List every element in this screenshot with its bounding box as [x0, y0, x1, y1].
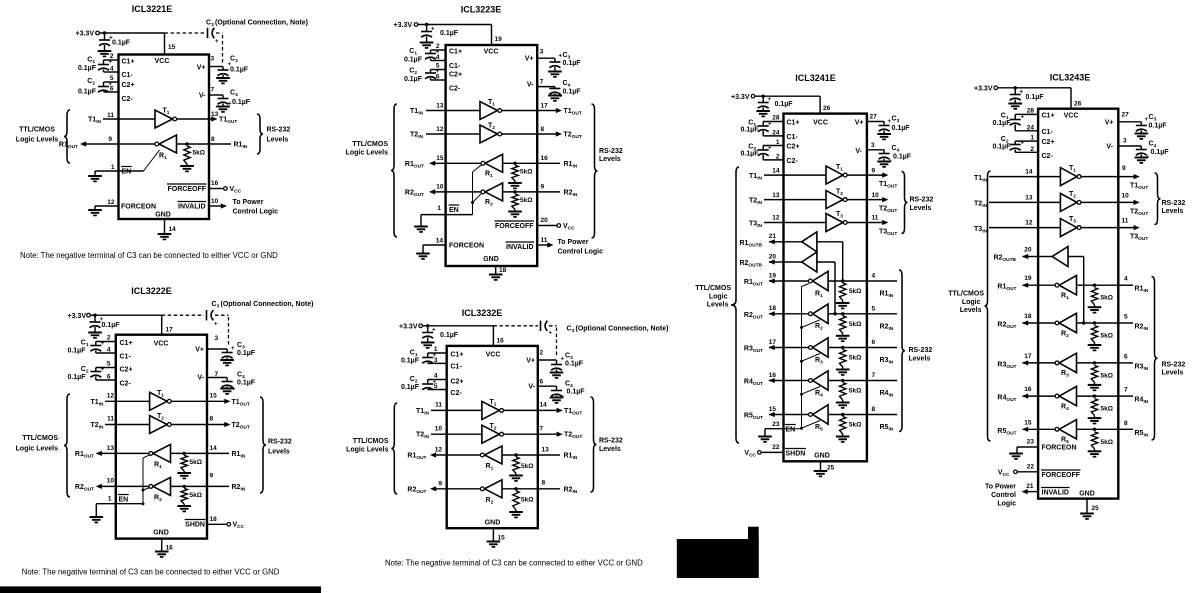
svg-text:25: 25 — [827, 465, 835, 472]
svg-text:C2+: C2+ — [1042, 139, 1055, 146]
svg-text:24: 24 — [772, 129, 780, 136]
svg-text:23: 23 — [1027, 439, 1035, 446]
svg-text:5kΩ: 5kΩ — [520, 197, 532, 204]
svg-text:FORCEON: FORCEON — [121, 204, 156, 211]
svg-text:C2+: C2+ — [787, 144, 800, 151]
svg-text:SHDN: SHDN — [786, 451, 806, 458]
svg-text:C1+: C1+ — [122, 59, 135, 66]
svg-text:0.1µF: 0.1µF — [563, 89, 582, 96]
svg-text:0.1µF: 0.1µF — [230, 67, 249, 74]
svg-text:5kΩ: 5kΩ — [1101, 439, 1113, 446]
svg-text:Note: The negative terminal of: Note: The negative terminal of C3 can be… — [385, 559, 643, 568]
svg-text:11: 11 — [872, 215, 879, 222]
svg-text:8: 8 — [1124, 420, 1128, 427]
svg-text:Levels: Levels — [599, 446, 621, 453]
svg-text:+: + — [214, 322, 218, 328]
svg-text:VCC: VCC — [484, 49, 499, 56]
svg-text:VCC: VCC — [1064, 113, 1079, 120]
svg-text:23: 23 — [772, 421, 780, 428]
svg-text:C2-: C2- — [449, 86, 461, 93]
svg-text:Logic Levels: Logic Levels — [346, 150, 389, 157]
svg-text:1: 1 — [437, 205, 441, 212]
svg-text:TTL/CMOS: TTL/CMOS — [948, 291, 984, 298]
svg-text:0.1µF: 0.1µF — [775, 101, 794, 108]
svg-text:+3.3V: +3.3V — [399, 324, 418, 331]
svg-text:RS-232: RS-232 — [909, 347, 933, 354]
svg-text:C1-: C1- — [122, 72, 134, 79]
svg-text:5: 5 — [434, 383, 438, 390]
svg-text:Levels: Levels — [268, 449, 290, 456]
svg-text:2: 2 — [776, 154, 780, 161]
svg-text:2: 2 — [436, 43, 440, 50]
svg-text:5: 5 — [1124, 314, 1128, 321]
svg-text:V+: V+ — [855, 120, 864, 127]
svg-text:EN: EN — [449, 207, 459, 214]
svg-text:+: + — [231, 346, 235, 352]
svg-text:7: 7 — [540, 426, 544, 433]
svg-text:10: 10 — [435, 426, 443, 433]
svg-text:5kΩ: 5kΩ — [521, 463, 533, 470]
svg-text:4: 4 — [436, 54, 440, 61]
svg-text:+: + — [768, 122, 772, 128]
svg-text:VCC: VCC — [813, 120, 828, 127]
svg-text:SHDN: SHDN — [185, 522, 205, 529]
svg-text:5kΩ: 5kΩ — [190, 492, 202, 499]
svg-text:7: 7 — [211, 87, 215, 94]
svg-text:V-: V- — [527, 82, 534, 89]
svg-text:+: + — [1020, 90, 1024, 96]
svg-text:INVALID: INVALID — [1042, 490, 1069, 497]
svg-text:12: 12 — [435, 447, 443, 454]
svg-text:ICL3243E: ICL3243E — [1050, 73, 1091, 83]
svg-text:FORCEON: FORCEON — [449, 243, 484, 250]
svg-text:+3.3V: +3.3V — [974, 86, 993, 93]
svg-text:RS-232: RS-232 — [1162, 200, 1186, 207]
svg-text:10: 10 — [211, 198, 219, 205]
svg-text:8: 8 — [541, 126, 545, 133]
svg-text:20: 20 — [541, 217, 549, 224]
svg-text:12: 12 — [772, 215, 780, 222]
svg-text:0.1µF: 0.1µF — [440, 30, 459, 37]
svg-text:14: 14 — [1025, 169, 1033, 176]
svg-text:6: 6 — [110, 86, 114, 93]
svg-text:VCC: VCC — [154, 341, 169, 348]
svg-text:0.1µF: 0.1µF — [404, 57, 423, 64]
svg-text:+: + — [768, 97, 772, 103]
svg-text:0.1µF: 0.1µF — [892, 125, 911, 132]
svg-text:C2+: C2+ — [451, 379, 464, 386]
svg-text:0.1µF: 0.1µF — [567, 389, 586, 396]
svg-text:0.1µF: 0.1µF — [1151, 149, 1170, 156]
svg-text:TTL/CMOS: TTL/CMOS — [19, 127, 55, 134]
svg-text:TTL/CMOS: TTL/CMOS — [352, 141, 388, 148]
svg-text:Logic Levels: Logic Levels — [16, 446, 59, 453]
svg-text:7: 7 — [215, 371, 219, 378]
svg-text:5kΩ: 5kΩ — [849, 355, 861, 362]
svg-text:5kΩ: 5kΩ — [521, 497, 533, 504]
svg-text:5kΩ: 5kΩ — [1101, 406, 1113, 413]
svg-text:C2-: C2- — [120, 381, 132, 388]
svg-text:25: 25 — [1092, 505, 1100, 512]
svg-text:9: 9 — [1122, 165, 1126, 172]
svg-text:10: 10 — [436, 184, 444, 191]
svg-text:15: 15 — [168, 44, 176, 51]
svg-text:RS-232: RS-232 — [1162, 362, 1186, 369]
svg-text:28: 28 — [772, 115, 780, 122]
svg-text:22: 22 — [1027, 464, 1035, 471]
svg-text:18: 18 — [769, 305, 777, 312]
svg-text:0.1µF: 0.1µF — [740, 127, 759, 134]
svg-text:7: 7 — [540, 79, 544, 86]
svg-text:0.1µF: 0.1µF — [992, 120, 1011, 127]
svg-text:6: 6 — [872, 339, 876, 346]
svg-text:0.1µF: 0.1µF — [78, 65, 97, 72]
svg-text:11: 11 — [1122, 218, 1129, 225]
svg-text:INVALID: INVALID — [506, 244, 533, 251]
svg-text:ICL3221E: ICL3221E — [132, 4, 173, 14]
svg-text:0.1µF: 0.1µF — [232, 99, 251, 106]
svg-text:5kΩ: 5kΩ — [1101, 333, 1113, 340]
svg-text:21: 21 — [769, 233, 777, 240]
svg-text:1: 1 — [108, 496, 112, 503]
svg-text:9: 9 — [438, 481, 442, 488]
svg-text:15: 15 — [436, 155, 444, 162]
svg-text:9: 9 — [872, 167, 876, 174]
svg-text:16: 16 — [497, 338, 505, 345]
svg-text:RS-232: RS-232 — [599, 148, 623, 155]
svg-text:C1-: C1- — [1042, 129, 1054, 136]
svg-text:0.1µF: 0.1µF — [78, 89, 97, 96]
svg-text:V-: V- — [528, 384, 535, 391]
svg-text:RS-232: RS-232 — [268, 439, 292, 446]
svg-text:11: 11 — [107, 416, 114, 423]
svg-text:18: 18 — [499, 267, 507, 274]
svg-text:Logic: Logic — [962, 299, 981, 306]
svg-text:+3.3V: +3.3V — [76, 31, 95, 38]
svg-text:V-: V- — [855, 148, 862, 155]
svg-text:4: 4 — [107, 347, 111, 354]
svg-text:1: 1 — [1030, 135, 1034, 142]
svg-text:0.1µF: 0.1µF — [740, 151, 759, 158]
svg-text:17: 17 — [166, 327, 174, 334]
svg-text:RS-232: RS-232 — [910, 197, 934, 204]
svg-text:Note: The negative terminal of: Note: The negative terminal of C3 can be… — [20, 251, 278, 260]
svg-text:FORCEON: FORCEON — [1042, 445, 1077, 452]
svg-text:20: 20 — [769, 253, 777, 260]
svg-text:V+: V+ — [525, 56, 534, 63]
svg-text:17: 17 — [541, 103, 549, 110]
svg-text:+3.3V: +3.3V — [394, 22, 413, 29]
svg-text:TTL/CMOS: TTL/CMOS — [22, 435, 58, 442]
svg-text:+: + — [431, 27, 435, 33]
svg-text:V-: V- — [197, 375, 204, 382]
svg-text:To Power: To Power — [985, 484, 1016, 491]
svg-text:To Power: To Power — [233, 199, 264, 206]
svg-text:V+: V+ — [526, 358, 535, 365]
svg-text:16: 16 — [541, 155, 549, 162]
svg-text:Logic Levels: Logic Levels — [16, 137, 59, 144]
svg-text:C2+: C2+ — [120, 367, 133, 374]
svg-text:5: 5 — [436, 63, 440, 70]
svg-text:V+: V+ — [1105, 120, 1114, 127]
svg-text:1: 1 — [434, 346, 438, 353]
svg-text:11: 11 — [107, 112, 114, 119]
svg-text:0.1µF: 0.1µF — [112, 40, 131, 47]
svg-text:15: 15 — [769, 406, 777, 413]
svg-text:6: 6 — [436, 74, 440, 81]
svg-text:20: 20 — [1024, 247, 1032, 254]
svg-text:ICL3223E: ICL3223E — [461, 5, 502, 15]
svg-text:14: 14 — [436, 238, 444, 245]
svg-text:V-: V- — [1106, 144, 1113, 151]
svg-text:+: + — [1021, 115, 1025, 121]
svg-text:8: 8 — [211, 136, 215, 143]
svg-text:FORCEOFF: FORCEOFF — [168, 186, 207, 193]
svg-text:6: 6 — [1124, 353, 1128, 360]
svg-text:+: + — [432, 328, 436, 334]
svg-text:C2+: C2+ — [122, 82, 135, 89]
svg-text:8: 8 — [872, 406, 876, 413]
svg-text:V+: V+ — [197, 65, 206, 72]
svg-text:5kΩ: 5kΩ — [193, 150, 205, 157]
svg-text:16: 16 — [211, 180, 219, 187]
svg-text:0.1µF: 0.1µF — [1026, 94, 1045, 101]
svg-text:C1+: C1+ — [787, 120, 800, 127]
svg-text:8: 8 — [542, 480, 546, 487]
svg-text:3: 3 — [871, 142, 875, 149]
svg-text:13: 13 — [542, 447, 550, 454]
svg-text:15: 15 — [498, 535, 506, 542]
svg-text:0.1µF: 0.1µF — [992, 143, 1011, 150]
svg-text:C1+: C1+ — [1042, 112, 1055, 119]
svg-text:Logic: Logic — [997, 501, 1016, 508]
svg-text:10: 10 — [107, 478, 115, 485]
svg-text:+3.3V: +3.3V — [731, 94, 750, 101]
svg-text:EN: EN — [119, 497, 129, 504]
svg-text:INVALID: INVALID — [178, 204, 205, 211]
svg-text:5: 5 — [872, 305, 876, 312]
svg-text:0.1µF: 0.1µF — [401, 358, 420, 365]
svg-text:3: 3 — [1123, 138, 1127, 145]
svg-text:Control: Control — [991, 492, 1016, 499]
svg-text:26: 26 — [1074, 101, 1082, 108]
svg-text:24: 24 — [1027, 124, 1035, 131]
svg-text:15: 15 — [1024, 419, 1032, 426]
svg-text:8: 8 — [210, 416, 214, 423]
svg-text:13: 13 — [772, 192, 780, 199]
svg-text:4: 4 — [872, 273, 876, 280]
svg-text:16: 16 — [769, 372, 777, 379]
svg-text:0.1µF: 0.1µF — [237, 380, 256, 387]
svg-text:4: 4 — [1124, 276, 1128, 283]
svg-text:2: 2 — [110, 53, 114, 60]
svg-text:27: 27 — [870, 114, 878, 121]
svg-text:3: 3 — [540, 49, 544, 56]
svg-text:4: 4 — [434, 373, 438, 380]
svg-text:0.1µF: 0.1µF — [893, 154, 912, 161]
svg-text:13: 13 — [436, 103, 444, 110]
svg-text:FORCEOFF: FORCEOFF — [1042, 472, 1081, 479]
svg-text:10: 10 — [1122, 192, 1130, 199]
svg-text:19: 19 — [495, 36, 503, 43]
svg-text:FORCEOFF: FORCEOFF — [495, 223, 534, 230]
svg-text:(Optional Connection, Note): (Optional Connection, Note) — [215, 20, 308, 27]
svg-text:9: 9 — [210, 473, 214, 480]
svg-text:3: 3 — [215, 335, 219, 342]
svg-text:C1-: C1- — [787, 134, 799, 141]
svg-text:11: 11 — [435, 402, 442, 409]
svg-text:C1+: C1+ — [451, 352, 464, 359]
svg-text:EN: EN — [122, 169, 132, 176]
svg-text:7: 7 — [872, 372, 876, 379]
svg-text:5: 5 — [110, 75, 114, 82]
svg-text:4: 4 — [110, 66, 114, 73]
svg-text:14: 14 — [772, 167, 780, 174]
svg-text:(Optional Connection, Note): (Optional Connection, Note) — [576, 326, 669, 333]
svg-text:Logic Levels: Logic Levels — [346, 447, 389, 454]
svg-text:C2-: C2- — [451, 390, 463, 397]
svg-text:1: 1 — [111, 164, 115, 171]
svg-text:16: 16 — [166, 545, 174, 552]
svg-text:Logic: Logic — [709, 294, 728, 301]
svg-text:Note: The negative terminal of: Note: The negative terminal of C3 can be… — [22, 568, 280, 577]
svg-text:C2+: C2+ — [449, 71, 462, 78]
svg-text:C2-: C2- — [787, 158, 799, 165]
svg-text:5kΩ: 5kΩ — [1101, 372, 1113, 379]
svg-text:+: + — [561, 357, 565, 363]
svg-text:18: 18 — [1024, 313, 1032, 320]
svg-text:+: + — [768, 146, 772, 152]
svg-text:7: 7 — [1124, 387, 1128, 394]
svg-text:22: 22 — [772, 444, 780, 451]
svg-text:13: 13 — [107, 445, 115, 452]
svg-text:2: 2 — [1030, 146, 1034, 153]
svg-text:Levels: Levels — [960, 307, 982, 314]
svg-text:+: + — [1021, 141, 1025, 147]
svg-text:EN: EN — [786, 427, 796, 434]
svg-text:18: 18 — [210, 516, 218, 523]
svg-text:19: 19 — [1024, 275, 1032, 282]
svg-text:0.1µF: 0.1µF — [401, 384, 420, 391]
svg-text:Control Logic: Control Logic — [233, 209, 279, 216]
svg-text:0.1µF: 0.1µF — [67, 348, 86, 355]
svg-text:C1-: C1- — [120, 354, 132, 361]
svg-text:GND: GND — [155, 212, 171, 219]
svg-text:14: 14 — [169, 226, 177, 233]
svg-text:11: 11 — [541, 237, 548, 244]
svg-text:RS-232: RS-232 — [267, 127, 291, 134]
svg-text:5kΩ: 5kΩ — [849, 288, 861, 295]
svg-text:C1-: C1- — [449, 63, 461, 70]
svg-text:VCC: VCC — [155, 58, 170, 65]
svg-text:5kΩ: 5kΩ — [1101, 295, 1113, 302]
svg-text:To Power: To Power — [558, 239, 589, 246]
svg-text:5: 5 — [107, 361, 111, 368]
svg-text:0.1µF: 0.1µF — [1149, 123, 1168, 130]
svg-text:C1+: C1+ — [120, 340, 133, 347]
svg-text:3: 3 — [434, 357, 438, 364]
svg-text:ICL3232E: ICL3232E — [462, 308, 503, 318]
svg-text:Levels: Levels — [910, 205, 932, 212]
svg-text:0.1µF: 0.1µF — [67, 374, 86, 381]
svg-text:(Optional Connection, Note): (Optional Connection, Note) — [221, 301, 314, 308]
svg-text:14: 14 — [540, 402, 548, 409]
svg-text:0.1µF: 0.1µF — [404, 76, 423, 83]
svg-text:C1-: C1- — [451, 364, 463, 371]
svg-text:0.1µF: 0.1µF — [102, 322, 121, 329]
svg-text:+: + — [101, 367, 105, 373]
svg-text:C1+: C1+ — [449, 49, 462, 56]
svg-text:GND: GND — [153, 530, 169, 537]
svg-text:ICL3222E: ICL3222E — [131, 286, 172, 296]
svg-text:+: + — [215, 39, 219, 45]
svg-text:Levels: Levels — [1162, 208, 1184, 215]
svg-text:12: 12 — [107, 393, 115, 400]
svg-text:C2-: C2- — [1042, 153, 1054, 160]
svg-text:GND: GND — [814, 453, 830, 460]
svg-text:2: 2 — [107, 335, 111, 342]
svg-text:Control Logic: Control Logic — [558, 249, 604, 256]
svg-text:3: 3 — [211, 56, 215, 63]
svg-text:VCC: VCC — [486, 352, 501, 359]
svg-text:17: 17 — [1024, 353, 1032, 360]
svg-text:5kΩ: 5kΩ — [520, 169, 532, 176]
svg-text:5kΩ: 5kΩ — [849, 388, 861, 395]
svg-text:C2-: C2- — [122, 96, 134, 103]
svg-text:+3.3V: +3.3V — [68, 313, 87, 320]
svg-text:10: 10 — [872, 192, 880, 199]
svg-text:Levels: Levels — [599, 156, 621, 163]
svg-text:0.1µF: 0.1µF — [237, 350, 256, 357]
svg-text:15: 15 — [210, 393, 218, 400]
svg-text:0.1µF: 0.1µF — [440, 332, 459, 339]
svg-text:5kΩ: 5kΩ — [190, 459, 202, 466]
svg-text:26: 26 — [823, 105, 831, 112]
svg-text:TTL/CMOS: TTL/CMOS — [695, 285, 731, 292]
svg-text:0.1µF: 0.1µF — [565, 361, 584, 368]
svg-text:1: 1 — [776, 139, 780, 146]
svg-text:V+: V+ — [195, 347, 204, 354]
svg-text:5kΩ: 5kΩ — [849, 422, 861, 429]
svg-text:Levels: Levels — [909, 356, 931, 363]
svg-text:14: 14 — [210, 445, 218, 452]
svg-text:12: 12 — [436, 126, 444, 133]
svg-text:12: 12 — [1025, 220, 1033, 227]
svg-text:V-: V- — [199, 93, 206, 100]
svg-text:6: 6 — [540, 379, 544, 386]
svg-text:2: 2 — [540, 350, 544, 357]
svg-text:28: 28 — [1027, 108, 1035, 115]
svg-text:9: 9 — [541, 184, 545, 191]
svg-text:21: 21 — [1026, 483, 1034, 490]
svg-text:Levels: Levels — [1162, 370, 1184, 377]
svg-text:GND: GND — [483, 256, 499, 263]
svg-text:GND: GND — [1079, 491, 1095, 498]
svg-text:GND: GND — [485, 520, 501, 527]
svg-text:13: 13 — [1025, 194, 1033, 201]
svg-text:12: 12 — [107, 199, 115, 206]
svg-text:TTL/CMOS: TTL/CMOS — [353, 438, 389, 445]
svg-text:27: 27 — [1122, 112, 1130, 119]
svg-text:+: + — [101, 341, 105, 347]
svg-text:0.1µF: 0.1µF — [563, 60, 582, 67]
svg-text:17: 17 — [769, 339, 777, 346]
svg-text:ICL3241E: ICL3241E — [795, 73, 836, 83]
svg-text:6: 6 — [107, 374, 111, 381]
svg-text:16: 16 — [1024, 386, 1032, 393]
svg-text:9: 9 — [108, 136, 112, 143]
svg-text:Levels: Levels — [707, 302, 729, 309]
